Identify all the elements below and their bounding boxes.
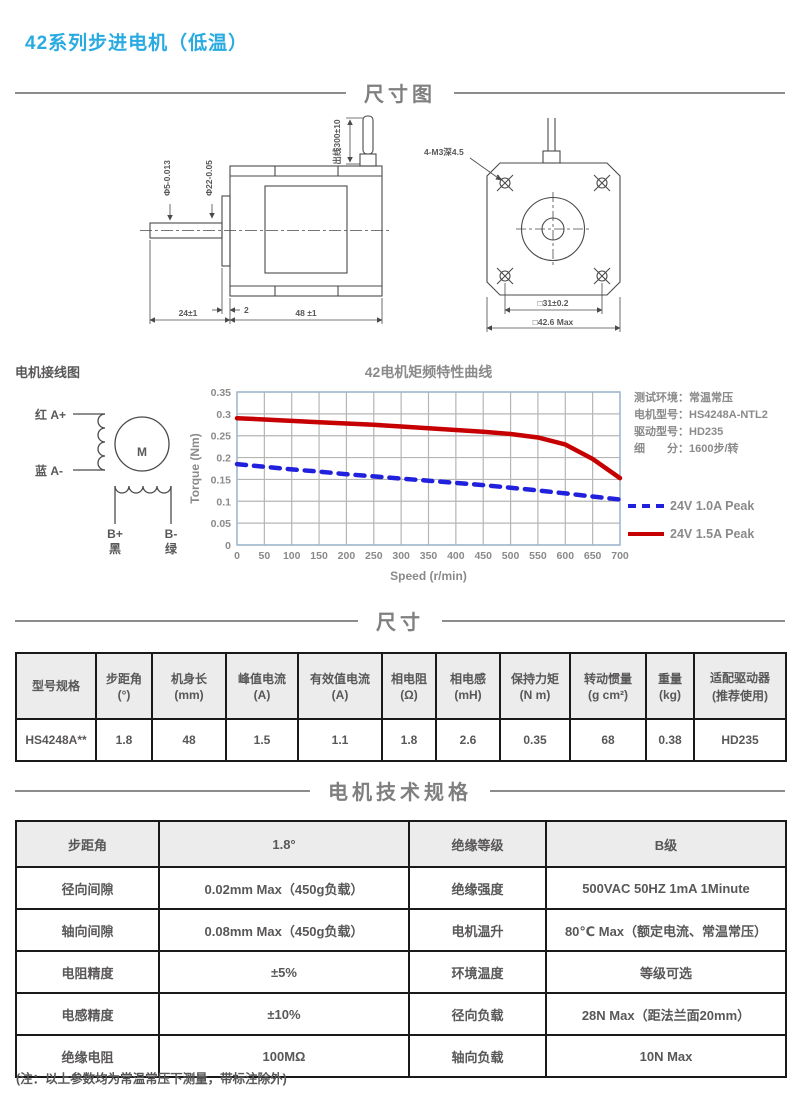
svg-text:50: 50 xyxy=(259,550,271,562)
spec-col-header: 转动惯量(g cm²) xyxy=(570,653,646,719)
wiring-diagram-title: 电机接线图 xyxy=(15,362,80,381)
svg-text:100: 100 xyxy=(283,550,301,562)
spec-cell-driver: HD235 xyxy=(694,719,786,761)
tech-cell: 电阻精度 xyxy=(16,951,159,993)
spec-col-header: 适配驱动器(推荐使用) xyxy=(694,653,786,719)
section-title-tech: 电机技术规格 xyxy=(328,776,472,805)
tech-cell: 绝缘等级 xyxy=(409,821,546,867)
spec-col-header: 型号规格 xyxy=(16,653,96,719)
footnote: (注：以上参数均为常温常压下测量，带标注除外) xyxy=(16,1068,287,1087)
tech-cell: 轴向间隙 xyxy=(16,909,159,951)
dim-hole-pitch: □31±0.2 xyxy=(537,298,568,308)
section-header-size: 尺寸 xyxy=(15,606,785,635)
spec-cell: 0.35 xyxy=(500,719,570,761)
legend-line-solid xyxy=(628,532,664,536)
divider-line xyxy=(454,92,785,94)
spec-col-header: 相电感(mH) xyxy=(436,653,500,719)
tech-cell: ±10% xyxy=(159,993,409,1035)
svg-text:350: 350 xyxy=(420,550,438,562)
tech-cell: 0.02mm Max（450g负载） xyxy=(159,867,409,909)
svg-text:550: 550 xyxy=(529,550,547,562)
divider-line xyxy=(490,790,785,792)
divider-line xyxy=(442,620,785,622)
page-title: 42系列步进电机（低温） xyxy=(25,28,248,55)
tech-row: 步距角 1.8° 绝缘等级 B级 xyxy=(16,821,786,867)
section-header-dimension-drawing: 尺寸图 xyxy=(15,78,785,107)
svg-text:0.2: 0.2 xyxy=(216,453,231,465)
coil-b xyxy=(115,486,171,493)
tech-cell: 500VAC 50HZ 1mA 1Minute xyxy=(546,867,786,909)
section-header-tech-spec: 电机技术规格 xyxy=(15,776,785,805)
note-line: 测试环境：常温常压 xyxy=(634,390,768,407)
svg-text:0.25: 0.25 xyxy=(211,431,232,443)
spec-cell: 48 xyxy=(152,719,226,761)
datasheet-page: 42系列步进电机（低温） 尺寸图 xyxy=(0,0,800,1097)
dim-shaft-diameter: Φ5-0.013 xyxy=(162,160,172,196)
spec-table: 型号规格 步距角(°) 机身长(mm) 峰值电流(A) 有效值电流(A) 相电阻… xyxy=(15,652,787,762)
svg-text:450: 450 xyxy=(474,550,492,562)
section-title-size: 尺寸 xyxy=(376,606,424,635)
tech-row: 电感精度 ±10% 径向负载 28N Max（距法兰面20mm） xyxy=(16,993,786,1035)
note-line: 细 分：1600步/转 xyxy=(634,441,768,458)
lead-b-plus-color: 黑 xyxy=(109,542,121,556)
svg-text:400: 400 xyxy=(447,550,465,562)
dim-pilot-step: 2 xyxy=(244,305,249,315)
svg-text:700: 700 xyxy=(611,550,629,562)
legend-label: 24V 1.5A Peak xyxy=(670,527,754,541)
spec-cell: 1.1 xyxy=(298,719,382,761)
dim-screw-spec: 4-M3深4.5 xyxy=(424,147,464,157)
lead-a-plus-label: 红 A+ xyxy=(35,407,66,422)
tech-row: 轴向间隙 0.08mm Max（450g负载） 电机温升 80℃ Max（额定电… xyxy=(16,909,786,951)
tech-cell: 28N Max（距法兰面20mm） xyxy=(546,993,786,1035)
tech-cell: B级 xyxy=(546,821,786,867)
divider-line xyxy=(15,620,358,622)
svg-text:250: 250 xyxy=(365,550,383,562)
tech-cell: 80℃ Max（额定电流、常温常压） xyxy=(546,909,786,951)
lead-b-minus-label: B- xyxy=(165,527,178,541)
svg-text:0.05: 0.05 xyxy=(211,518,232,530)
motor-symbol-letter: M xyxy=(137,445,147,459)
divider-line xyxy=(15,92,346,94)
spec-col-header: 保持力矩(N m) xyxy=(500,653,570,719)
note-line: 电机型号：HS4248A-NTL2 xyxy=(634,407,768,424)
chart-title: 42电机矩频特性曲线 xyxy=(237,362,620,380)
spec-value-row: HS4248A** 1.8 48 1.5 1.1 1.8 2.6 0.35 68… xyxy=(16,719,786,761)
tech-cell: 1.8° xyxy=(159,821,409,867)
tech-cell: 电机温升 xyxy=(409,909,546,951)
svg-text:0.3: 0.3 xyxy=(216,409,231,421)
spec-cell: 0.38 xyxy=(646,719,694,761)
chart-plot: 0501001502002503003504004505005506006507… xyxy=(185,380,635,590)
svg-text:200: 200 xyxy=(338,550,356,562)
svg-text:0.35: 0.35 xyxy=(211,387,232,399)
spec-col-header: 机身长(mm) xyxy=(152,653,226,719)
tech-cell: 径向负载 xyxy=(409,993,546,1035)
motor-symbol-circle xyxy=(115,417,169,471)
spec-cell: 1.5 xyxy=(226,719,298,761)
chart-legend: 24V 1.0A Peak 24V 1.5A Peak xyxy=(628,492,754,548)
svg-text:600: 600 xyxy=(557,550,575,562)
spec-cell: 1.8 xyxy=(96,719,152,761)
spec-cell: 2.6 xyxy=(436,719,500,761)
section-title-drawing: 尺寸图 xyxy=(364,78,436,107)
tech-cell: 步距角 xyxy=(16,821,159,867)
coil-a xyxy=(98,414,105,470)
lead-b-plus-label: B+ xyxy=(107,527,123,541)
svg-text:0.15: 0.15 xyxy=(211,474,232,486)
spec-cell: 68 xyxy=(570,719,646,761)
tech-cell: 轴向负载 xyxy=(409,1035,546,1077)
spec-col-header: 有效值电流(A) xyxy=(298,653,382,719)
lead-a-minus-label: 蓝 A- xyxy=(35,463,63,478)
dim-body-length: 48 ±1 xyxy=(295,308,316,318)
front-view-drawing: □31±0.2 □42.6 Max xyxy=(487,118,620,332)
dim-pilot-diameter: Φ22-0.05 xyxy=(204,160,214,196)
svg-text:650: 650 xyxy=(584,550,602,562)
legend-item: 24V 1.5A Peak xyxy=(628,520,754,548)
dim-outline: □42.6 Max xyxy=(533,317,574,327)
spec-header-row: 型号规格 步距角(°) 机身长(mm) 峰值电流(A) 有效值电流(A) 相电阻… xyxy=(16,653,786,719)
tech-cell: 10N Max xyxy=(546,1035,786,1077)
svg-text:300: 300 xyxy=(392,550,410,562)
legend-line-dashed xyxy=(628,504,664,508)
tech-spec-table: 步距角 1.8° 绝缘等级 B级 径向间隙 0.02mm Max（450g负载）… xyxy=(15,820,787,1078)
tech-cell: 环境温度 xyxy=(409,951,546,993)
lead-b-minus-color: 绿 xyxy=(165,541,178,556)
svg-text:500: 500 xyxy=(502,550,520,562)
dim-wire-length: 出线300±10 xyxy=(332,119,342,165)
divider-line xyxy=(15,790,310,792)
tech-cell: 径向间隙 xyxy=(16,867,159,909)
svg-text:0: 0 xyxy=(225,540,231,552)
tech-row: 电阻精度 ±5% 环境温度 等级可选 xyxy=(16,951,786,993)
tech-cell: 0.08mm Max（450g负载） xyxy=(159,909,409,951)
side-view-drawing: 出线300±10 4-M3深4.5 Φ5-0.013 Φ22-0.05 24±1… xyxy=(140,116,501,324)
tech-cell: 等级可选 xyxy=(546,951,786,993)
torque-chart: 42电机矩频特性曲线 05010015020025030035040045050… xyxy=(185,362,645,590)
svg-text:Speed (r/min): Speed (r/min) xyxy=(390,569,467,583)
spec-col-header: 峰值电流(A) xyxy=(226,653,298,719)
spec-cell-model: HS4248A** xyxy=(16,719,96,761)
tech-cell: 绝缘强度 xyxy=(409,867,546,909)
note-line: 驱动型号：HD235 xyxy=(634,424,768,441)
svg-text:0.1: 0.1 xyxy=(216,496,231,508)
legend-label: 24V 1.0A Peak xyxy=(670,499,754,513)
tech-row: 径向间隙 0.02mm Max（450g负载） 绝缘强度 500VAC 50HZ… xyxy=(16,867,786,909)
svg-text:150: 150 xyxy=(310,550,328,562)
spec-col-header: 重量(kg) xyxy=(646,653,694,719)
dimension-drawing: 出线300±10 4-M3深4.5 Φ5-0.013 Φ22-0.05 24±1… xyxy=(40,106,700,351)
chart-test-conditions: 测试环境：常温常压 电机型号：HS4248A-NTL2 驱动型号：HD235 细… xyxy=(634,390,768,458)
spec-col-header: 步距角(°) xyxy=(96,653,152,719)
dim-shaft-length: 24±1 xyxy=(179,308,198,318)
tech-cell: ±5% xyxy=(159,951,409,993)
spec-cell: 1.8 xyxy=(382,719,436,761)
legend-item: 24V 1.0A Peak xyxy=(628,492,754,520)
spec-col-header: 相电阻(Ω) xyxy=(382,653,436,719)
tech-cell: 电感精度 xyxy=(16,993,159,1035)
svg-text:0: 0 xyxy=(234,550,240,562)
svg-text:Torque (Nm): Torque (Nm) xyxy=(188,433,202,503)
